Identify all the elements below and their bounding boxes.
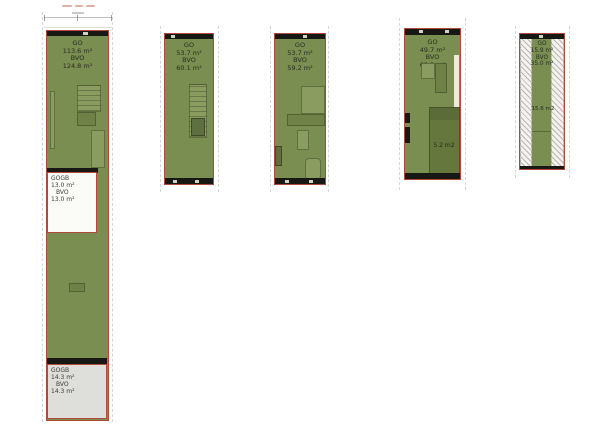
stair-landing-fixture [191,118,205,136]
floorplan-unit-2: GO 53.7 m² BVO 60.1 m² [164,33,214,185]
wc-fixture [297,130,309,150]
room-area-label: 15.6 m2 [524,106,562,112]
gogb-box-lower: GOGB 14.3 m² BVO 14.3 m² [47,364,107,419]
gogb-value: 14.3 m² [51,374,106,381]
floorplan-unit-1: GO 113.6 m² BVO 124.8 m² GOGB 13.0 m² BV… [46,30,109,421]
door-leaf [405,113,410,123]
gogb-box-upper: GOGB 13.0 m² BVO 13.0 m² [47,172,97,233]
floorplan-unit-5: GO 15.9 m² BVO 35.0 m² 15.6 m2 [519,33,565,170]
door-leaf [405,127,410,143]
grid-line [160,26,161,192]
unit-5-area-label: GO 15.9 m² BVO 35.0 m² [520,41,564,68]
top-wall [275,34,325,39]
dimension-text-mark [72,12,84,14]
top-wall [47,31,108,36]
dimension-line [44,27,112,28]
unit-1-area-label: GO 113.6 m² BVO 124.8 m² [47,40,108,70]
bvo-value: 14.3 m² [51,388,106,395]
gogb-value: 13.0 m² [51,182,96,189]
bathroom-fixture [301,86,325,114]
grid-line [328,26,329,192]
stairs-fixture [77,85,101,112]
gogb-label: GOGB [51,175,96,182]
floorplan-unit-4: GO 49.7 m² BVO 63.3 m² 5.2 m2 [404,28,461,180]
bottom-wall [520,166,564,169]
shaft-fixture [91,130,105,168]
bvo-value: 13.0 m² [51,196,96,203]
grid-line [515,26,516,178]
go-value: 15.9 m² [520,48,564,55]
gogb-label: GOGB [51,367,106,374]
grid-line [42,12,43,422]
bvo-label: BVO [51,189,96,196]
bvo-label: BVO [51,381,106,388]
kitchen-fixture [421,63,435,79]
counter-fixture [287,114,325,126]
top-wall [405,29,460,35]
grid-line [569,26,570,178]
top-wall [520,34,564,39]
bottom-wall [275,178,325,184]
grid-line [465,18,466,190]
grid-line [112,12,113,422]
wall-opening [454,55,459,107]
dimension-note-mark [62,5,72,7]
wall-notch [309,180,313,183]
dimension-line [44,17,112,18]
unit-2-area-label: GO 53.7 m² BVO 60.1 m² [165,42,213,72]
go-label: GO [520,41,564,48]
wall-notch [173,180,177,183]
grid-line [399,18,400,190]
wall-fixture [50,91,55,149]
unit-3-area-label: GO 53.7 m² BVO 59.2 m² [275,42,325,72]
door-fixture [275,146,282,166]
garden-fixture [69,283,85,292]
bvo-value: 35.0 m² [520,61,564,68]
interior-line [532,131,551,132]
wall-notch [285,180,289,183]
bathtub-fixture [305,158,321,180]
grid-line [218,26,219,192]
floorplan-unit-3: GO 53.7 m² BVO 59.2 m² [274,33,326,185]
bvo-value: 59.2 m² [275,65,325,73]
dimension-note-mark [75,5,83,7]
dimension-note-mark [86,5,95,7]
bottom-wall [405,173,460,179]
floorplan-sheet: GO 113.6 m² BVO 124.8 m² GOGB 13.0 m² BV… [0,0,600,424]
top-wall [165,34,213,39]
terrace-edge [430,108,459,120]
room-area-label: 5.2 m2 [427,143,461,149]
kitchen-fixture [435,63,447,93]
landing-fixture [77,112,96,126]
bvo-value: 60.1 m² [165,65,213,73]
bvo-value: 124.8 m² [47,63,108,71]
wall-notch [195,180,199,183]
grid-line [270,26,271,192]
